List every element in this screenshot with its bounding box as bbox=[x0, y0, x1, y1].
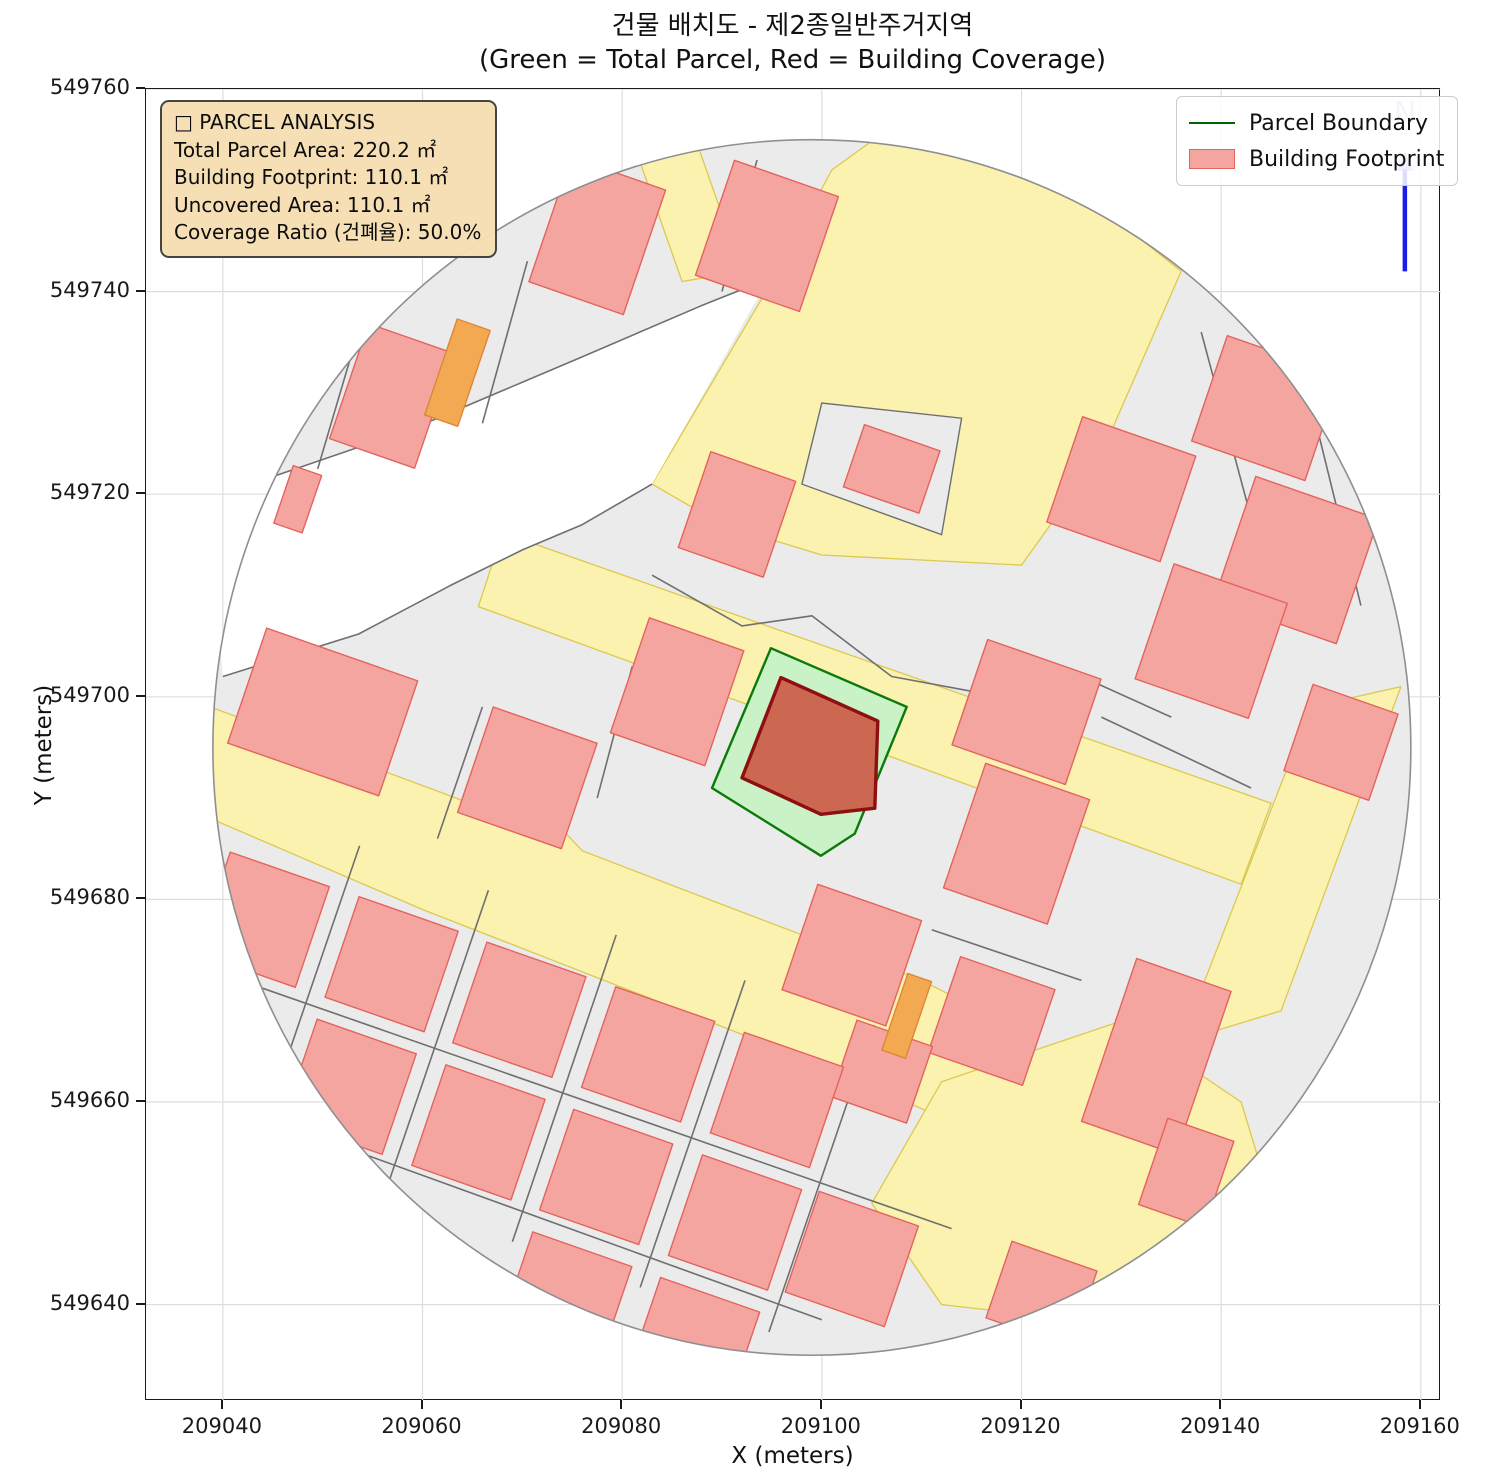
y-tick-mark bbox=[136, 87, 145, 89]
y-tick-mark bbox=[136, 290, 145, 292]
figure: 건물 배치도 - 제2종일반주거지역 (Green = Total Parcel… bbox=[0, 0, 1485, 1483]
plot-area bbox=[145, 88, 1440, 1400]
x-tick-label: 209080 bbox=[566, 1414, 676, 1438]
x-tick-mark bbox=[1219, 1400, 1221, 1409]
y-tick-label: 549720 bbox=[18, 480, 130, 504]
building-footprint-patch-swatch bbox=[1189, 149, 1235, 169]
legend-label-building-footprint: Building Footprint bbox=[1249, 147, 1444, 172]
x-tick-mark bbox=[820, 1400, 822, 1409]
parcel-boundary-line-swatch bbox=[1189, 122, 1235, 124]
y-tick-label: 549660 bbox=[18, 1088, 130, 1112]
legend-item-building-footprint: Building Footprint bbox=[1189, 141, 1445, 177]
analysis-building-footprint: Building Footprint: 110.1 ㎡ bbox=[174, 164, 481, 192]
legend: Parcel Boundary Building Footprint bbox=[1176, 96, 1458, 186]
y-tick-label: 549760 bbox=[18, 75, 130, 99]
parcel-analysis-box: □ PARCEL ANALYSIS Total Parcel Area: 220… bbox=[160, 100, 497, 258]
chart-title-block: 건물 배치도 - 제2종일반주거지역 (Green = Total Parcel… bbox=[145, 10, 1440, 78]
y-tick-mark bbox=[136, 492, 145, 494]
y-tick-label: 549700 bbox=[18, 683, 130, 707]
x-tick-label: 209140 bbox=[1165, 1414, 1275, 1438]
x-tick-mark bbox=[620, 1400, 622, 1409]
y-tick-mark bbox=[136, 897, 145, 899]
x-tick-label: 209040 bbox=[167, 1414, 277, 1438]
x-tick-mark bbox=[1020, 1400, 1022, 1409]
y-tick-mark bbox=[136, 695, 145, 697]
analysis-total-area: Total Parcel Area: 220.2 ㎡ bbox=[174, 137, 481, 165]
legend-label-parcel-boundary: Parcel Boundary bbox=[1249, 111, 1428, 136]
x-tick-mark bbox=[421, 1400, 423, 1409]
x-axis-label: X (meters) bbox=[145, 1443, 1440, 1469]
x-tick-label: 209160 bbox=[1365, 1414, 1475, 1438]
y-tick-mark bbox=[136, 1100, 145, 1102]
map-content-group bbox=[163, 119, 1411, 1401]
analysis-uncovered-area: Uncovered Area: 110.1 ㎡ bbox=[174, 192, 481, 220]
y-tick-mark bbox=[136, 1303, 145, 1305]
y-tick-label: 549740 bbox=[18, 278, 130, 302]
x-tick-label: 209100 bbox=[766, 1414, 876, 1438]
y-tick-label: 549640 bbox=[18, 1291, 130, 1315]
analysis-coverage-ratio: Coverage Ratio (건폐율): 50.0% bbox=[174, 219, 481, 247]
analysis-title: □ PARCEL ANALYSIS bbox=[174, 109, 481, 137]
y-tick-label: 549680 bbox=[18, 885, 130, 909]
map-canvas bbox=[146, 89, 1441, 1401]
x-tick-mark bbox=[1419, 1400, 1421, 1409]
x-tick-label: 209120 bbox=[966, 1414, 1076, 1438]
x-tick-mark bbox=[221, 1400, 223, 1409]
x-tick-label: 209060 bbox=[367, 1414, 477, 1438]
legend-item-parcel-boundary: Parcel Boundary bbox=[1189, 105, 1445, 141]
chart-title: 건물 배치도 - 제2종일반주거지역 bbox=[145, 10, 1440, 44]
chart-subtitle: (Green = Total Parcel, Red = Building Co… bbox=[145, 44, 1440, 78]
